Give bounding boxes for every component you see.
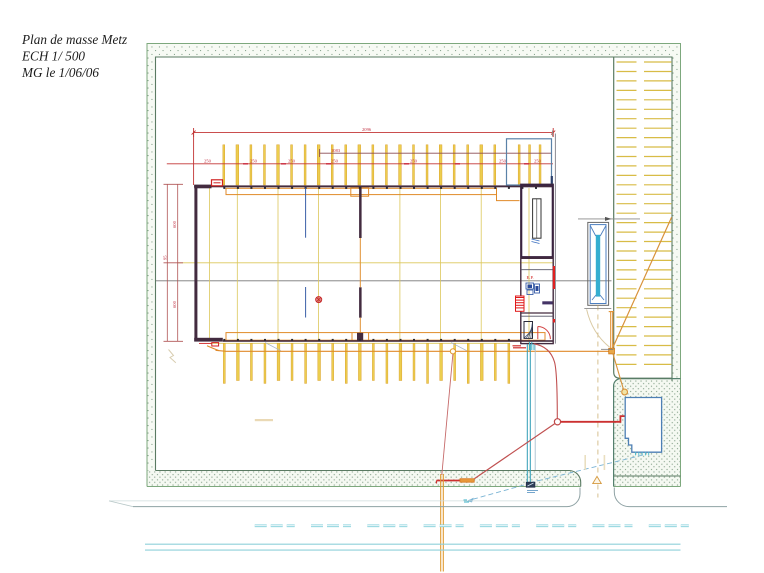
svg-text:250: 250 xyxy=(331,159,339,164)
svg-text:250: 250 xyxy=(534,159,542,164)
svg-text:Plan de masse Metz: Plan de masse Metz xyxy=(21,32,127,47)
svg-text:250: 250 xyxy=(499,159,507,164)
svg-text:95: 95 xyxy=(163,255,168,260)
svg-text:1083: 1083 xyxy=(331,148,341,153)
svg-text:600: 600 xyxy=(172,300,177,308)
svg-text:ECH 1/ 500: ECH 1/ 500 xyxy=(21,49,85,64)
svg-text:MG le 1/06/06: MG le 1/06/06 xyxy=(21,65,99,80)
svg-text:E.P.: E.P. xyxy=(527,275,534,280)
svg-text:250: 250 xyxy=(288,159,296,164)
svg-text:250: 250 xyxy=(410,159,418,164)
svg-text:250: 250 xyxy=(250,159,258,164)
svg-text:250: 250 xyxy=(204,159,212,164)
svg-text:600: 600 xyxy=(172,220,177,228)
svg-text:2096: 2096 xyxy=(362,127,372,132)
